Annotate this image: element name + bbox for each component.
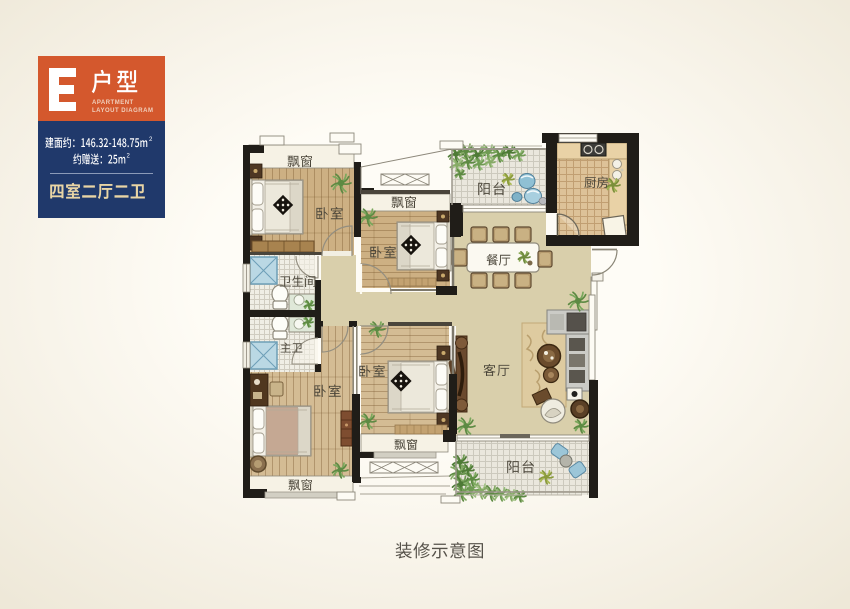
svg-text:APARTMENT: APARTMENT	[92, 100, 134, 106]
svg-text:LAYOUT DIAGRAM: LAYOUT DIAGRAM	[92, 108, 153, 114]
